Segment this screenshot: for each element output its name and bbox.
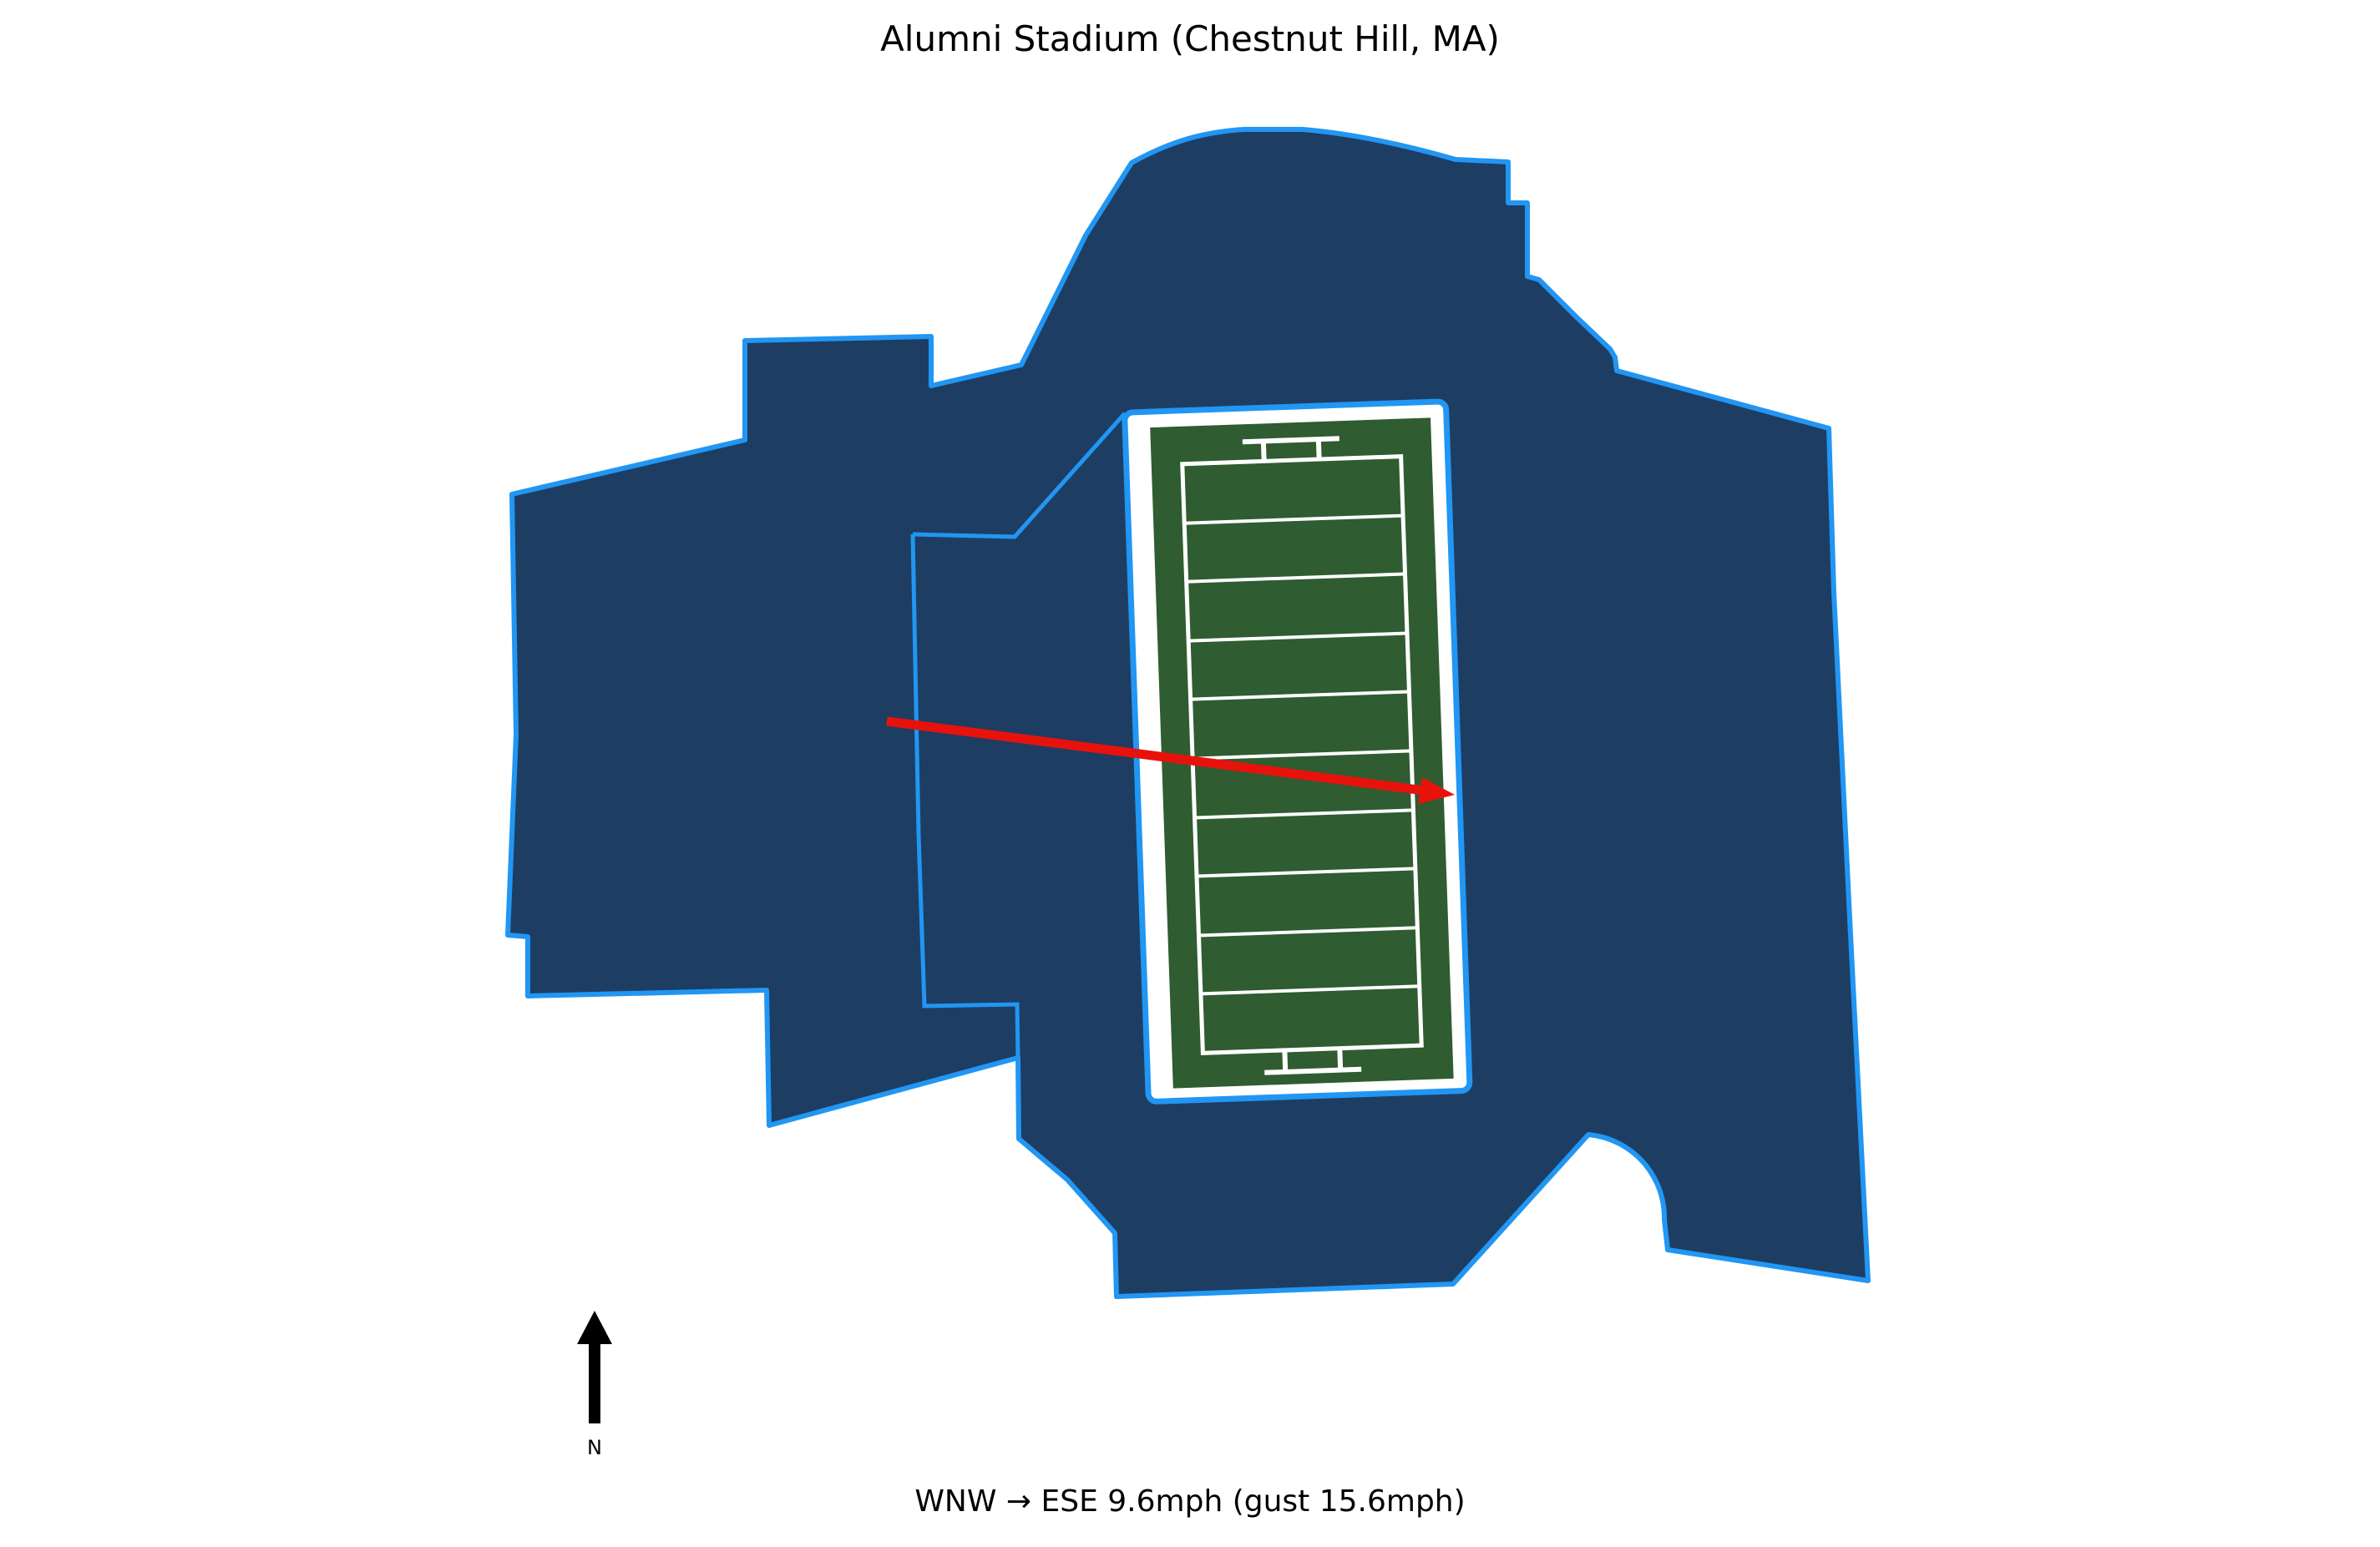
stadium-figure: Alumni Stadium (Chestnut Hill, MA) xyxy=(0,0,2380,1547)
football-field xyxy=(1125,402,1471,1102)
goal-post-upright xyxy=(1284,1050,1285,1072)
north-label: N xyxy=(587,1436,602,1459)
north-arrow: N xyxy=(577,1311,612,1459)
goal-post-upright xyxy=(1319,439,1319,459)
stadium-map: N xyxy=(0,0,2380,1547)
goal-post-crossbar xyxy=(1264,1069,1361,1073)
goal-post-crossbar xyxy=(1243,438,1339,442)
north-arrow-head xyxy=(577,1311,612,1344)
goal-post-upright xyxy=(1339,1049,1340,1070)
goal-post-upright xyxy=(1263,441,1264,461)
wind-caption: WNW → ESE 9.6mph (gust 15.6mph) xyxy=(0,1484,2380,1519)
north-arrow-shaft xyxy=(589,1339,600,1423)
